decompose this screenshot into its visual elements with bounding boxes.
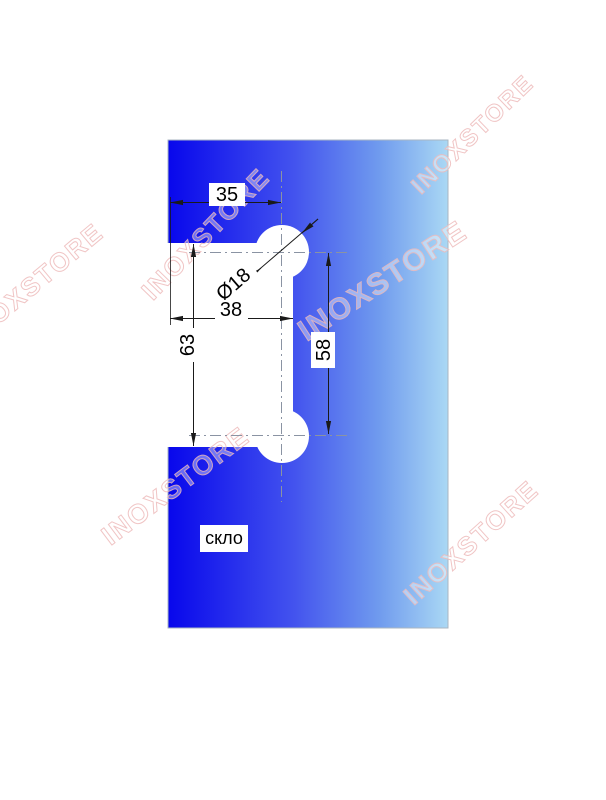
dim-value-38: 38 <box>220 299 242 321</box>
drawing-page: { "drawing": { "type": "glass-cutout-tec… <box>0 0 606 800</box>
dim-value-35: 35 <box>216 184 238 206</box>
dim-label-58: 58 <box>311 332 335 368</box>
watermark-text: INOXSTORE <box>406 70 539 200</box>
dim-label-38: 38 <box>215 299 248 321</box>
material-label: скло <box>200 525 248 552</box>
material-label-text: скло <box>205 528 243 548</box>
dim-value-63: 63 <box>177 334 199 356</box>
dim-value-58: 58 <box>313 339 335 361</box>
dim-label-63: 63 <box>176 328 199 362</box>
watermark-text: INOXSTORE <box>0 217 109 350</box>
technical-drawing-canvas: INOXSTORE INOXSTORE INOXSTORE INOXSTORE … <box>0 0 606 800</box>
dim-label-35: 35 <box>209 183 245 206</box>
